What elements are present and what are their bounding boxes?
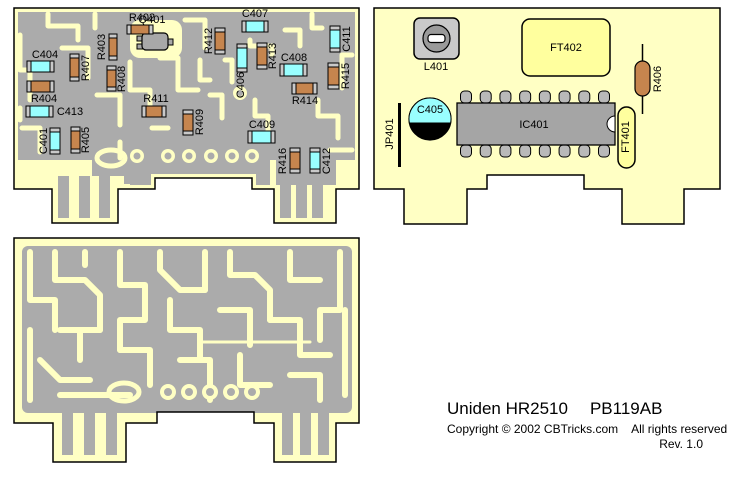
component-label: R412: [203, 28, 215, 54]
component-c406: C406: [235, 44, 247, 98]
component-c411: C411: [330, 26, 353, 52]
chip-end-cap: [237, 44, 247, 48]
chip-end-cap: [271, 131, 275, 143]
ic-pin: [520, 91, 531, 103]
component-label: C413: [57, 106, 83, 118]
coil-slot: [428, 35, 445, 43]
component-label: JP401: [384, 118, 396, 149]
component-label: L401: [424, 61, 448, 73]
component-label: R409: [194, 109, 206, 135]
component-r409: R409: [183, 109, 206, 135]
component-label: R408: [116, 66, 128, 92]
component-ft401: FT401: [618, 107, 635, 168]
chip-end-cap: [257, 43, 267, 47]
component-side-board: L401FT402R406IC401C405JP401FT401: [374, 8, 720, 224]
component-label: FT401: [620, 121, 632, 153]
component-label: C407: [242, 8, 268, 20]
footer-revision: Rev. 1.0: [447, 437, 703, 452]
component-c405: C405: [409, 98, 451, 140]
ic-pin: [480, 91, 491, 103]
component-r413: R413: [257, 43, 279, 69]
chip-end-cap: [310, 169, 320, 173]
ic-pin: [579, 91, 590, 103]
component-label: R407: [80, 55, 92, 81]
footer: Uniden HR2510PB119AB Copyright © 2002 CB…: [447, 399, 703, 452]
chip-end-cap: [149, 25, 153, 34]
component-r402: R402: [127, 12, 155, 34]
component-label: C401: [38, 128, 50, 154]
chip-end-cap: [183, 110, 193, 114]
chip-end-cap: [215, 28, 225, 32]
component-label: FT402: [550, 42, 582, 54]
chip-end-cap: [127, 25, 131, 34]
component-label: R411: [143, 93, 168, 105]
chip-end-cap: [328, 63, 339, 67]
chip-end-cap: [50, 150, 60, 154]
ic-pin: [599, 145, 610, 157]
component-label: C409: [249, 119, 275, 131]
component-label: C411: [341, 26, 353, 51]
component-r407: R407: [70, 54, 92, 81]
chip-end-cap: [242, 21, 246, 32]
component-label: C408: [281, 52, 307, 64]
component-r408: R408: [107, 66, 128, 92]
component-label: C404: [32, 49, 58, 61]
transistor-body: [142, 33, 168, 50]
chip-end-cap: [257, 65, 267, 69]
component-label: R405: [80, 127, 92, 153]
chip-end-cap: [290, 148, 300, 152]
component-label: C406: [235, 72, 247, 98]
chip-end-cap: [328, 85, 339, 89]
component-c409: C409: [248, 119, 275, 143]
component-label: C412: [321, 148, 333, 174]
component-r404: R404: [27, 81, 57, 105]
chip-end-cap: [303, 64, 307, 76]
chip-end-cap: [107, 87, 116, 91]
chip-end-cap: [50, 128, 60, 132]
footer-copyright: Copyright © 2002 CBTricks.comAll rights …: [447, 422, 703, 437]
component-r416: R416: [277, 148, 300, 174]
component-label: R414: [292, 95, 318, 107]
chip-end-cap: [215, 50, 225, 54]
component-c401: C401: [38, 128, 60, 154]
chip-end-cap: [237, 68, 247, 72]
component-label: R415: [340, 63, 352, 89]
pcb-layout-sheet: Q401R402R403R407C404R404C413R408R411C401…: [0, 0, 744, 478]
chip-end-cap: [162, 106, 166, 117]
resistor-body: [635, 61, 650, 96]
ic-pin: [520, 145, 531, 157]
solder-board-artwork: [14, 238, 359, 462]
chip-end-cap: [50, 61, 54, 72]
ic-pin: [539, 145, 550, 157]
ic-pin: [500, 145, 511, 157]
ic-pin: [559, 91, 570, 103]
component-label: R413: [267, 43, 279, 69]
ic-pin: [500, 91, 511, 103]
chip-end-cap: [71, 127, 80, 131]
chip-end-cap: [70, 77, 79, 81]
jumper-wire: [398, 103, 401, 167]
chip-end-cap: [264, 21, 268, 32]
chip-end-cap: [330, 26, 340, 30]
ic-pin: [480, 145, 491, 157]
footer-pb-number: PB119AB: [590, 399, 662, 418]
component-label: R404: [31, 93, 57, 105]
chip-end-cap: [109, 34, 117, 38]
chip-end-cap: [292, 83, 296, 94]
component-r414: R414: [292, 83, 318, 107]
ic-pin: [579, 145, 590, 157]
chip-end-cap: [280, 64, 284, 76]
component-label: C405: [417, 104, 443, 116]
chip-end-cap: [142, 106, 146, 117]
ic-pin: [599, 91, 610, 103]
smd-side-board: Q401R402R403R407C404R404C413R408R411C401…: [14, 8, 360, 225]
component-ft402: FT402: [522, 19, 610, 76]
chip-end-cap: [330, 48, 340, 52]
component-r415: R415: [328, 63, 352, 89]
component-label: R402: [129, 12, 155, 24]
ic-pin: [461, 145, 472, 157]
chip-end-cap: [70, 54, 79, 58]
footer-copyright-left: Copyright © 2002 CBTricks.com: [447, 422, 618, 436]
component-label: R403: [96, 34, 108, 60]
chip-end-cap: [248, 131, 252, 143]
component-c408: C408: [280, 52, 307, 76]
component-c412: C412: [310, 148, 333, 174]
footer-title: Uniden HR2510PB119AB: [447, 399, 703, 419]
chip-end-cap: [49, 106, 53, 117]
chip-end-cap: [26, 106, 30, 117]
footer-model: Uniden HR2510: [447, 399, 568, 418]
ic-pin: [461, 91, 472, 103]
footer-copyright-right: All rights reserved: [631, 422, 727, 436]
chip-end-cap: [313, 83, 317, 94]
component-c404: C404: [27, 49, 58, 72]
component-r405: R405: [71, 127, 92, 153]
component-r412: R412: [203, 28, 225, 54]
component-label: R406: [652, 66, 664, 92]
solder-side-board: [14, 238, 359, 462]
ic-pin: [559, 145, 570, 157]
chip-end-cap: [107, 66, 116, 70]
component-label: IC401: [519, 119, 548, 131]
chip-end-cap: [71, 149, 80, 153]
chip-end-cap: [27, 61, 31, 72]
chip-end-cap: [290, 169, 300, 173]
chip-end-cap: [27, 81, 31, 92]
component-label: R416: [277, 148, 289, 174]
chip-end-cap: [310, 148, 320, 152]
chip-end-cap: [183, 131, 193, 135]
ic-pin: [539, 91, 550, 103]
chip-end-cap: [50, 81, 54, 92]
chip-end-cap: [109, 56, 117, 60]
component-r403: R403: [96, 34, 117, 60]
